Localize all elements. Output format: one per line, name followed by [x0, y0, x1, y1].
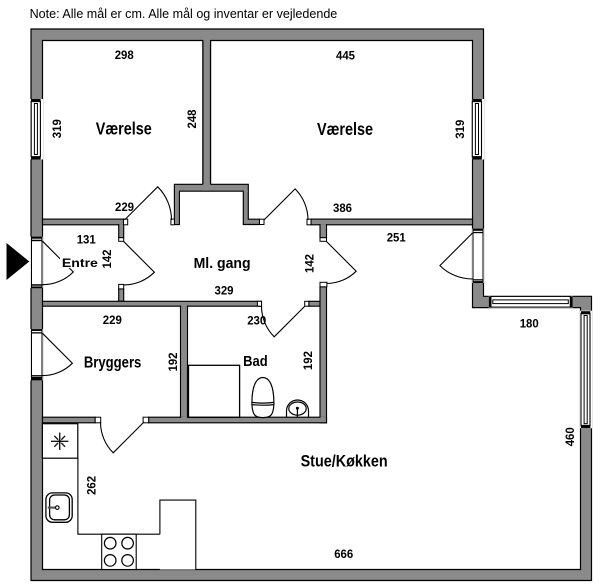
svg-text:298: 298 — [115, 48, 134, 62]
svg-text:230: 230 — [247, 314, 266, 328]
svg-text:319: 319 — [50, 119, 64, 138]
svg-text:Entre: Entre — [62, 256, 98, 270]
svg-text:248: 248 — [185, 109, 199, 128]
svg-text:229: 229 — [115, 200, 134, 214]
svg-text:142: 142 — [100, 249, 114, 268]
svg-text:262: 262 — [85, 476, 99, 495]
svg-text:460: 460 — [563, 427, 577, 446]
svg-text:329: 329 — [215, 283, 234, 297]
svg-text:192: 192 — [166, 352, 180, 371]
svg-text:192: 192 — [301, 351, 315, 370]
svg-text:142: 142 — [303, 254, 317, 273]
svg-text:Bad: Bad — [243, 353, 268, 370]
svg-text:Ml. gang: Ml. gang — [194, 255, 251, 272]
svg-text:445: 445 — [336, 49, 355, 63]
svg-text:229: 229 — [103, 313, 122, 327]
svg-text:386: 386 — [333, 201, 352, 215]
svg-text:Stue/Køkken: Stue/Køkken — [301, 451, 388, 470]
svg-text:666: 666 — [334, 547, 353, 561]
svg-text:Værelse: Værelse — [317, 119, 373, 139]
svg-text:Værelse: Værelse — [96, 119, 152, 139]
svg-text:251: 251 — [387, 230, 406, 244]
svg-text:131: 131 — [77, 232, 96, 246]
svg-text:319: 319 — [453, 119, 467, 138]
svg-text:180: 180 — [520, 316, 539, 330]
svg-text:Note: Alle mål er cm. Alle mål: Note: Alle mål er cm. Alle mål og invent… — [30, 7, 338, 21]
svg-text:Bryggers: Bryggers — [84, 354, 142, 371]
